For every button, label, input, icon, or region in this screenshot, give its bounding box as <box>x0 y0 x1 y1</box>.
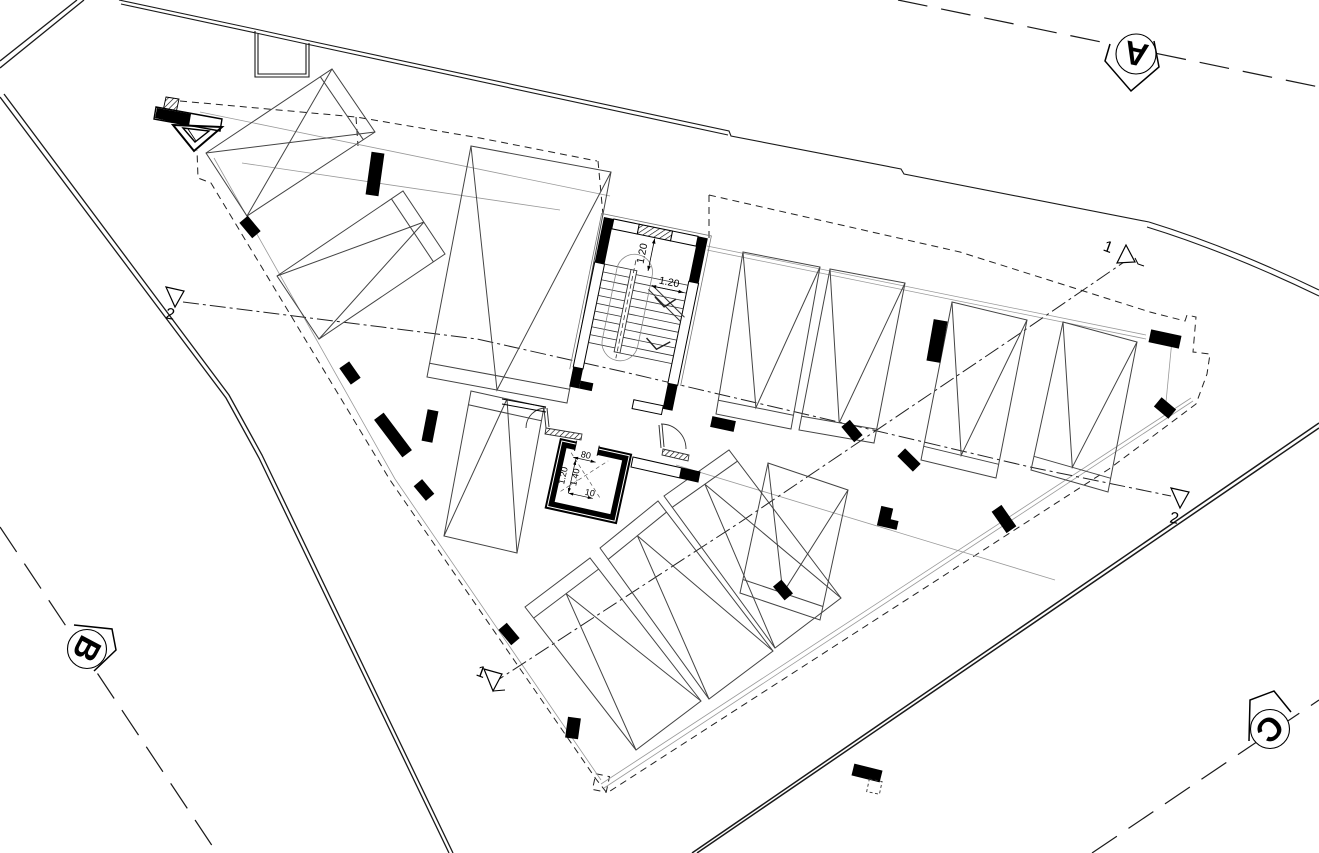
svg-text:80: 80 <box>580 449 592 461</box>
svg-text:10: 10 <box>584 487 596 499</box>
